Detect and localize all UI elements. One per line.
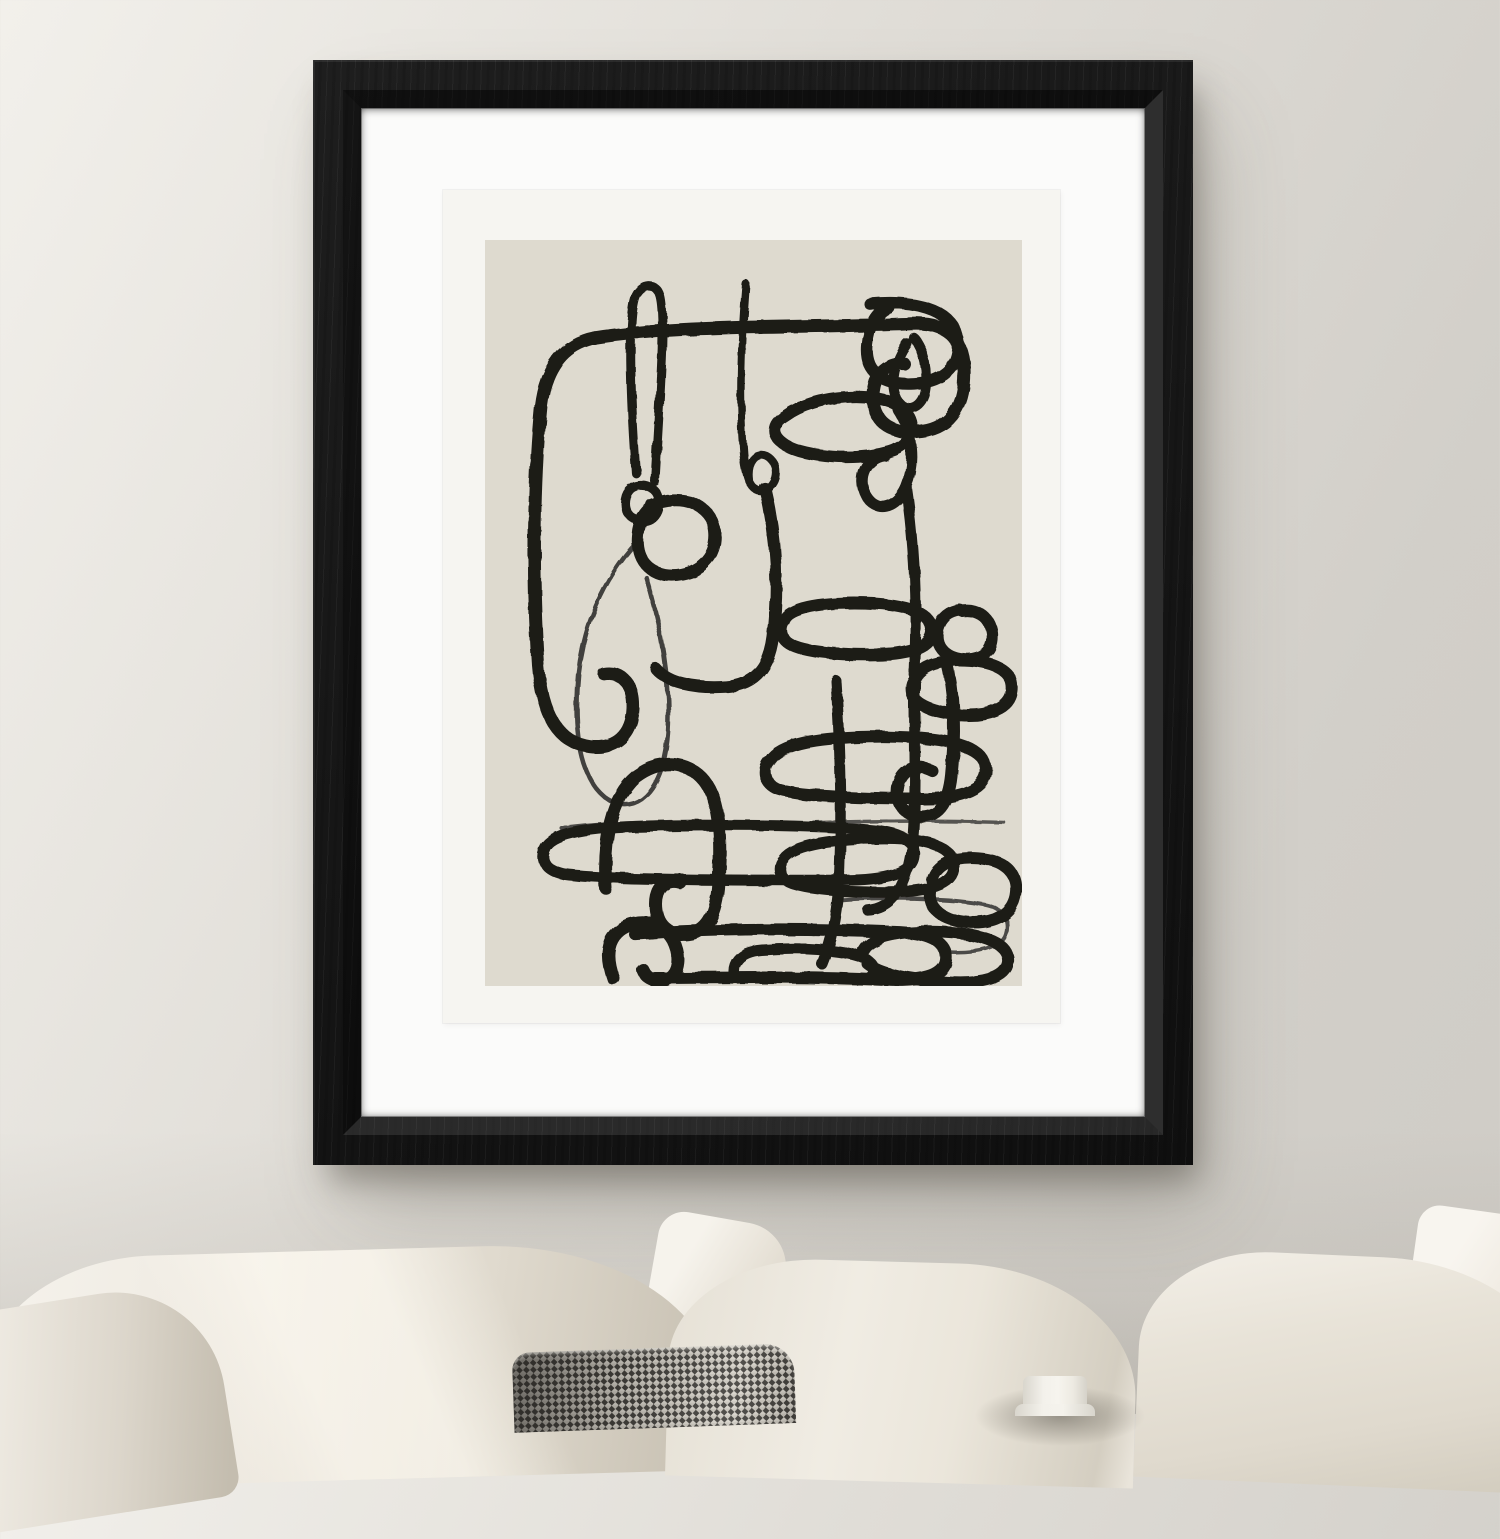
artwork-strokes [534, 284, 1016, 982]
print-paper [443, 190, 1060, 1023]
frame-mat [361, 108, 1145, 1117]
vase-shoulder [1015, 1404, 1095, 1416]
pillow-right-large [1133, 1247, 1500, 1496]
artwork-svg [485, 240, 1022, 986]
living-room-scene [0, 0, 1500, 1414]
abstract-line-art [485, 240, 1022, 986]
tweed-cushion [512, 1343, 797, 1433]
picture-frame [313, 60, 1193, 1165]
